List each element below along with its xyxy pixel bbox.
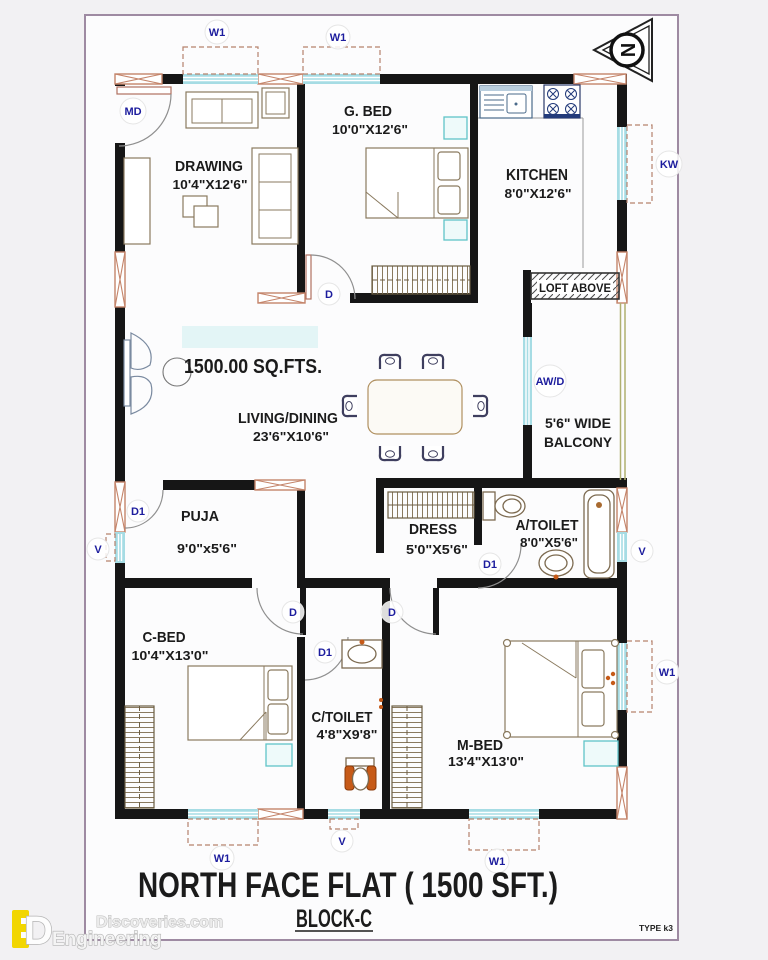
svg-text:D1: D1	[318, 647, 332, 659]
label-d-mbed: D	[381, 601, 403, 623]
label-awd: AW/D	[534, 365, 566, 397]
svg-text:D: D	[388, 607, 396, 619]
dining-table	[368, 380, 462, 434]
gbed-room-label: G. BED	[344, 103, 392, 120]
drawing-room-label: DRAWING	[175, 158, 243, 175]
svg-text:AW/D: AW/D	[536, 376, 565, 388]
svg-text:W1: W1	[209, 27, 226, 39]
svg-text:W1: W1	[659, 667, 676, 679]
dress-room-dims: 5'0"X5'6"	[406, 542, 468, 557]
label-d1-atoilet: D1	[479, 553, 501, 575]
ctoilet-room-label: C/TOILET	[312, 709, 373, 726]
svg-text:D: D	[325, 289, 333, 301]
gbed-room-dims: 10'0"X12'6"	[332, 122, 408, 137]
svg-text:KW: KW	[660, 159, 679, 171]
svg-text:V: V	[338, 836, 346, 848]
block-label: BLOCK-C	[296, 905, 372, 933]
type-code: TYPE k3	[639, 923, 673, 933]
logo-d-icon: D	[24, 909, 53, 953]
svg-text:D1: D1	[483, 559, 497, 571]
label-v-right: V	[631, 540, 653, 562]
label-d1-ctoilet: D1	[314, 641, 336, 663]
puja-room-label: PUJA	[181, 508, 219, 525]
mbed-room-label: M-BED	[457, 737, 503, 754]
loft-label: LOFT ABOVE	[539, 283, 611, 295]
puja-room-dims: 9'0"x5'6"	[177, 541, 237, 556]
kitchen-room-label: KITCHEN	[506, 167, 568, 184]
label-d1-puja: D1	[127, 500, 149, 522]
mbed-room-dims: 13'4"X13'0"	[448, 754, 524, 769]
label-w1-top-left: W1	[205, 20, 229, 44]
balcony-label-line2: BALCONY	[544, 434, 613, 450]
svg-text:V: V	[638, 546, 646, 558]
compass-north-letter: N	[618, 43, 640, 57]
living-room-label: LIVING/DINING	[238, 410, 338, 427]
label-d-cbed: D	[282, 601, 304, 623]
svg-text:D: D	[289, 607, 297, 619]
label-kw: KW	[656, 151, 682, 177]
svg-text:W1: W1	[330, 32, 347, 44]
label-v-bottom: V	[331, 830, 353, 852]
floor-plan-drawing: DRAWING 10'4"X12'6" G. BED 10'0"X12'6" K…	[0, 0, 768, 960]
label-w1-top-right: W1	[326, 25, 350, 49]
svg-text:MD: MD	[124, 106, 141, 118]
window-awd-balcony	[523, 337, 532, 425]
svg-text:W1: W1	[214, 853, 231, 865]
cbed-room-label: C-BED	[143, 629, 186, 646]
label-v-left: V	[87, 538, 109, 560]
dress-room-label: DRESS	[409, 521, 457, 538]
label-md: MD	[120, 98, 146, 124]
balcony-label-line1: 5'6" WIDE	[545, 415, 611, 431]
living-room-dims: 23'6"X10'6"	[253, 429, 329, 444]
area-note: 1500.00 SQ.FTS.	[184, 356, 322, 378]
fixtures-dress	[388, 492, 474, 518]
plan-title: NORTH FACE FLAT ( 1500 SFT.)	[138, 866, 558, 905]
cbed-room-dims: 10'4"X13'0"	[132, 648, 209, 663]
atoilet-room-dims: 8'0"X5'6"	[520, 535, 578, 550]
kitchen-room-dims: 8'0"X12'6"	[505, 186, 572, 201]
watermark-brand: Engineering	[52, 929, 162, 950]
svg-text:D1: D1	[131, 506, 145, 518]
label-d-gbed: D	[318, 283, 340, 305]
atoilet-room-label: A/TOILET	[516, 517, 579, 534]
floor-plan-page: DRAWING 10'4"X12'6" G. BED 10'0"X12'6" K…	[0, 0, 768, 960]
window-v-right	[617, 532, 627, 562]
svg-text:V: V	[94, 544, 102, 556]
drawing-room-dims: 10'4"X12'6"	[173, 177, 248, 192]
label-w1-mbed: W1	[655, 660, 679, 684]
ctoilet-room-dims: 4'8"X9'8"	[317, 727, 378, 742]
